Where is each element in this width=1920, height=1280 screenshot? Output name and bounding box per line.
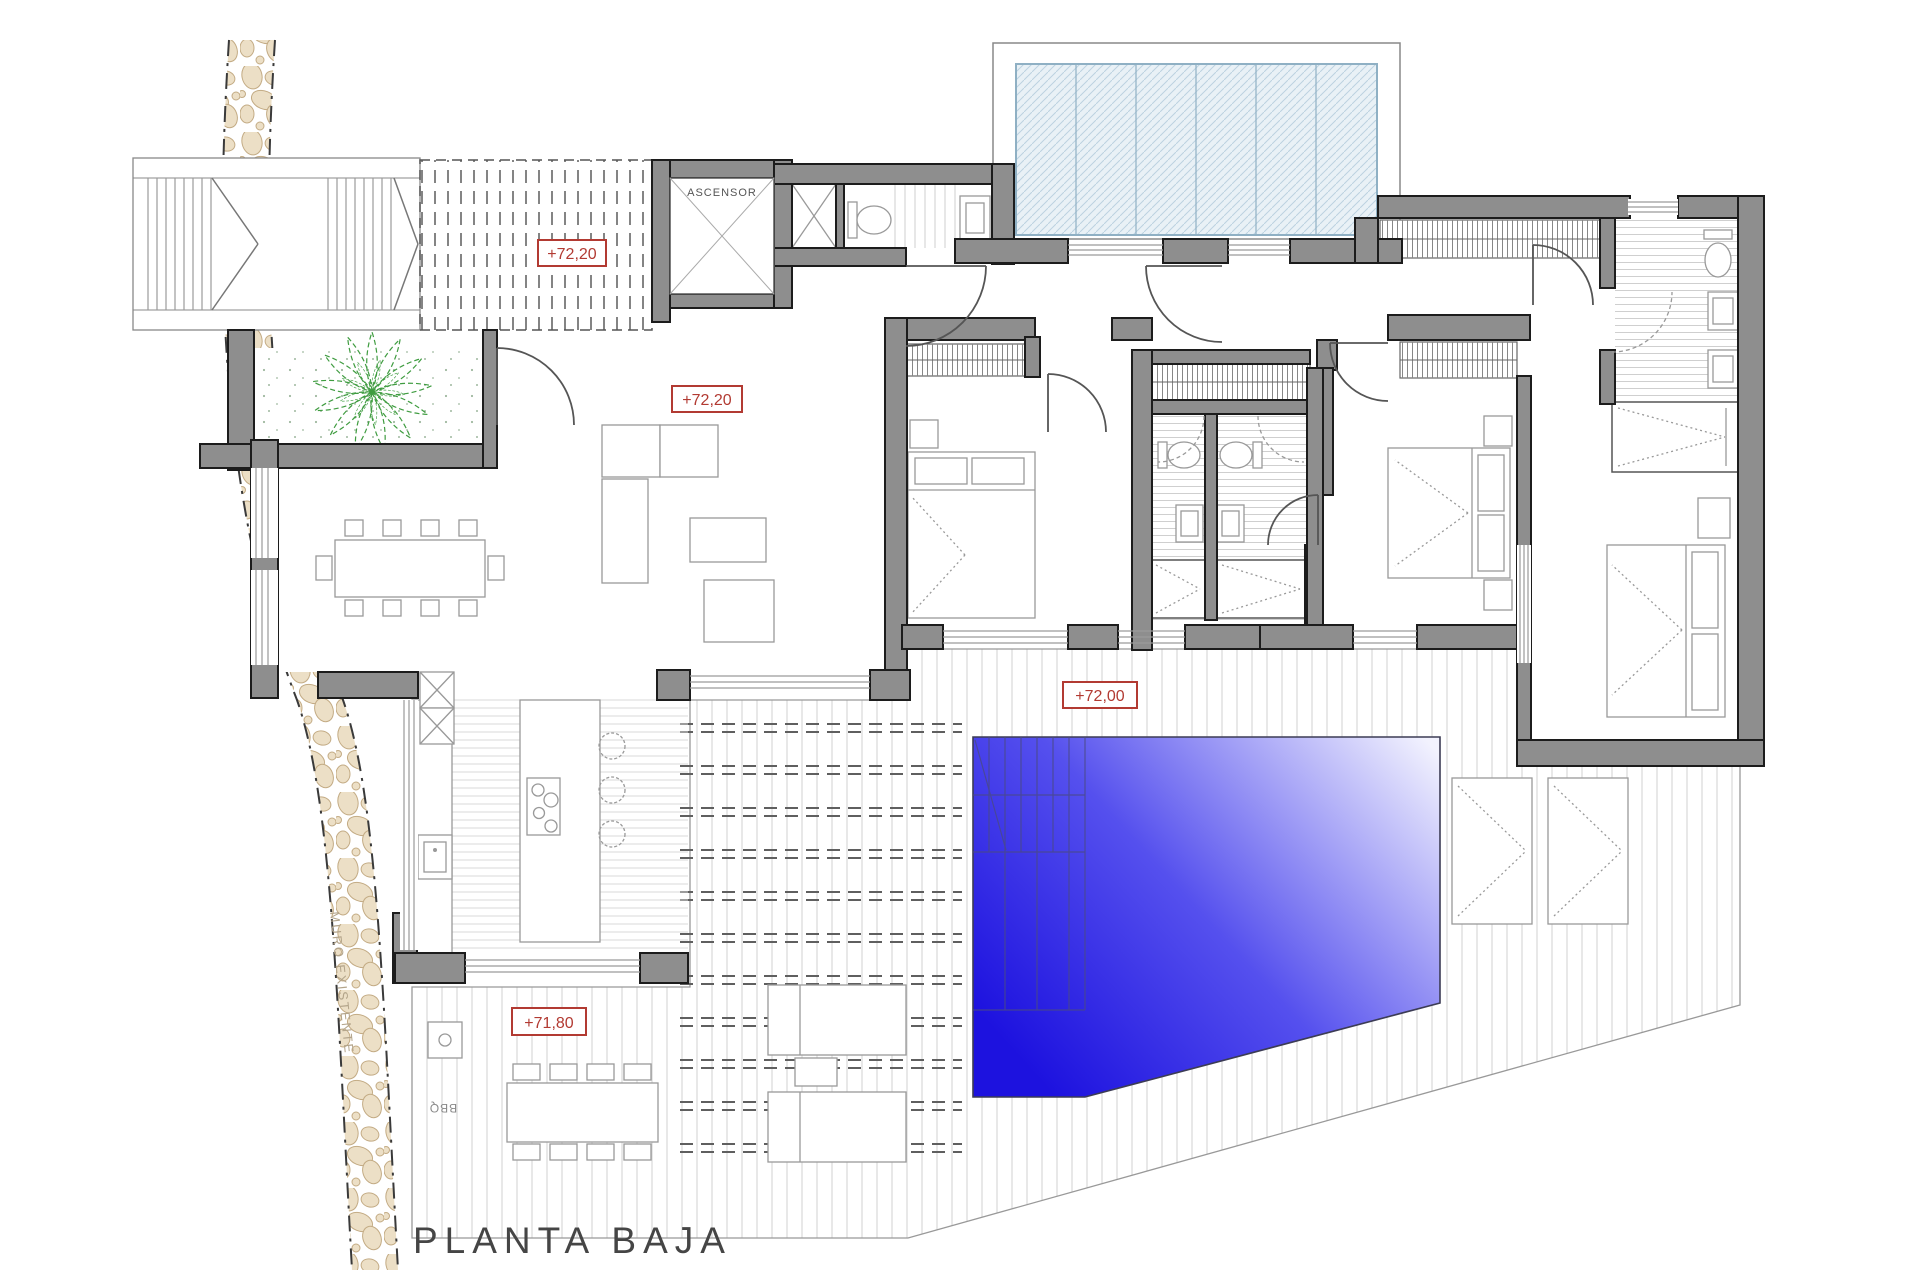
elevation-label-pool-deck: +72,00 [1063,682,1137,708]
entry-terrace-deck [420,160,652,330]
svg-text:+72,00: +72,00 [1075,688,1124,705]
wardrobe-bedroom-2 [1400,342,1517,378]
elevation-label-living: +72,20 [672,386,742,412]
elevation-label-entry: +72,20 [538,240,606,266]
sliding-door [465,960,640,972]
elevation-label-bbq-terrace: +71,80 [512,1008,586,1035]
patio-gravel [254,348,482,444]
glass-skylight [993,43,1400,239]
nightstand [1698,498,1730,538]
side-table [795,1058,837,1086]
external-stairs [133,158,420,330]
window [1628,199,1678,215]
bbq-unit [428,1022,462,1058]
floor-plan-canvas: ASCENSOR +72,20 +72,20 +72,00 +71,80 BBQ… [0,0,1920,1280]
window [251,570,278,665]
sliding-door [690,676,870,688]
wardrobe-corridor [1380,220,1605,258]
plan-title: PLANTA BAJA [413,1220,732,1261]
guest-wc-floor [890,184,962,248]
svg-text:+72,20: +72,20 [547,246,596,263]
wardrobe-hall [1152,364,1310,400]
wardrobe-bedroom-1 [907,344,1027,376]
nightstand [1484,416,1512,446]
window [1068,245,1163,255]
svg-text:+72,20: +72,20 [682,392,731,409]
elevator: ASCENSOR [670,178,774,294]
bbq-label: BBQ [429,1101,457,1115]
window [400,700,418,950]
nightstand [910,420,938,448]
dining-table [335,540,485,597]
window [1517,545,1531,663]
outdoor-table [507,1083,658,1142]
window [1228,245,1290,255]
coffee-table [690,518,766,562]
floor-plan-drawing: ASCENSOR +72,20 +72,20 +72,00 +71,80 BBQ… [0,0,1920,1280]
toilet [848,202,857,238]
elevator-label: ASCENSOR [687,187,757,199]
window [251,468,278,558]
nightstand [1484,580,1512,610]
master-shower [1612,402,1738,472]
svg-text:+71,80: +71,80 [524,1015,573,1032]
armchair [704,580,774,642]
